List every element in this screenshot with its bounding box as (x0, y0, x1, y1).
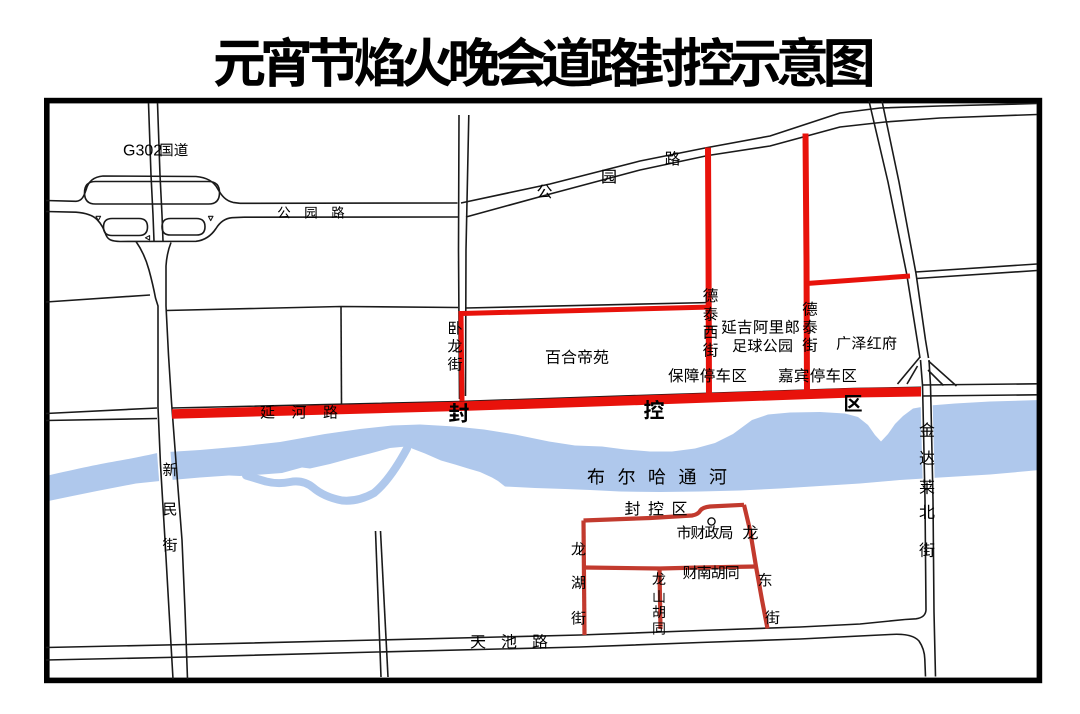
svg-text:G302: G302 (123, 143, 162, 160)
